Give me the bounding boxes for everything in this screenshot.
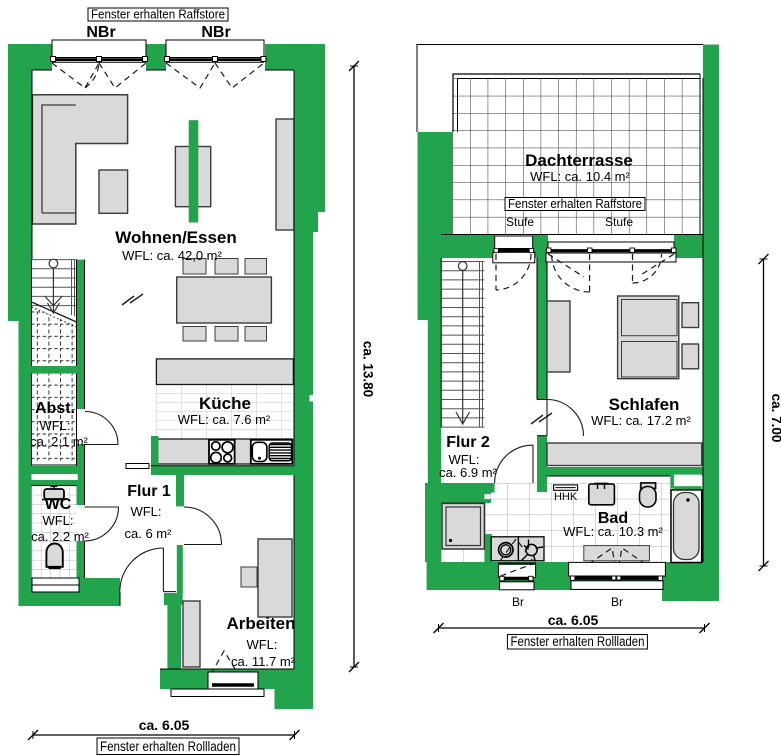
- svg-text:WFL: ca. 10.4 m²: WFL: ca. 10.4 m²: [530, 169, 630, 184]
- svg-text:Stufe: Stufe: [506, 215, 534, 229]
- svg-text:Dachterrasse: Dachterrasse: [525, 151, 633, 170]
- svg-text:ca. 6.05: ca. 6.05: [548, 612, 599, 628]
- svg-text:Schlafen: Schlafen: [609, 395, 680, 414]
- svg-text:NBr: NBr: [201, 24, 230, 41]
- svg-text:Stufe: Stufe: [605, 215, 633, 229]
- svg-text:Br: Br: [611, 595, 623, 609]
- svg-text:WFL: ca. 42,0 m²: WFL: ca. 42,0 m²: [122, 248, 222, 263]
- svg-text:ca. 2.1 m²: ca. 2.1 m²: [30, 434, 88, 449]
- svg-text:Fenster erhalten Rollladen: Fenster erhalten Rollladen: [511, 634, 645, 649]
- svg-text:WFL:: WFL:: [130, 504, 161, 519]
- svg-text:Abst.: Abst.: [35, 400, 75, 417]
- svg-text:ca. 11.7 m²: ca. 11.7 m²: [231, 654, 296, 669]
- svg-text:Fenster erhalten Raffstore: Fenster erhalten Raffstore: [91, 8, 225, 22]
- svg-text:WFL:: WFL:: [39, 418, 70, 433]
- svg-text:NBr: NBr: [86, 24, 115, 41]
- svg-text:ca. 6 m²: ca. 6 m²: [125, 526, 173, 541]
- svg-text:Küche: Küche: [199, 394, 251, 413]
- svg-text:Arbeiten: Arbeiten: [227, 614, 296, 633]
- svg-text:ca. 6.05: ca. 6.05: [139, 717, 190, 733]
- svg-text:Wohnen/Essen: Wohnen/Essen: [115, 228, 237, 247]
- svg-text:ca. 6.9 m²: ca. 6.9 m²: [439, 465, 497, 480]
- svg-text:WFL:: WFL:: [246, 637, 277, 652]
- svg-text:Flur 2: Flur 2: [446, 434, 490, 451]
- svg-text:Br: Br: [512, 595, 524, 609]
- svg-text:WFL: ca. 17.2 m²: WFL: ca. 17.2 m²: [591, 413, 691, 428]
- svg-text:Fenster erhalten Raffstore: Fenster erhalten Raffstore: [508, 197, 642, 211]
- svg-text:HHK: HHK: [554, 491, 578, 503]
- svg-text:Flur 1: Flur 1: [127, 483, 171, 500]
- svg-text:ca. 13.80: ca. 13.80: [361, 341, 376, 397]
- svg-text:WFL: ca. 7.6 m²: WFL: ca. 7.6 m²: [178, 412, 271, 427]
- svg-text:WFL:: WFL:: [42, 513, 73, 528]
- svg-text:WFL: ca. 10.3 m²: WFL: ca. 10.3 m²: [563, 524, 663, 539]
- svg-text:Fenster erhalten Rollladen: Fenster erhalten Rollladen: [100, 739, 236, 754]
- svg-text:ca. 7.00: ca. 7.00: [769, 394, 781, 443]
- svg-text:ca. 2.2 m²: ca. 2.2 m²: [31, 529, 89, 544]
